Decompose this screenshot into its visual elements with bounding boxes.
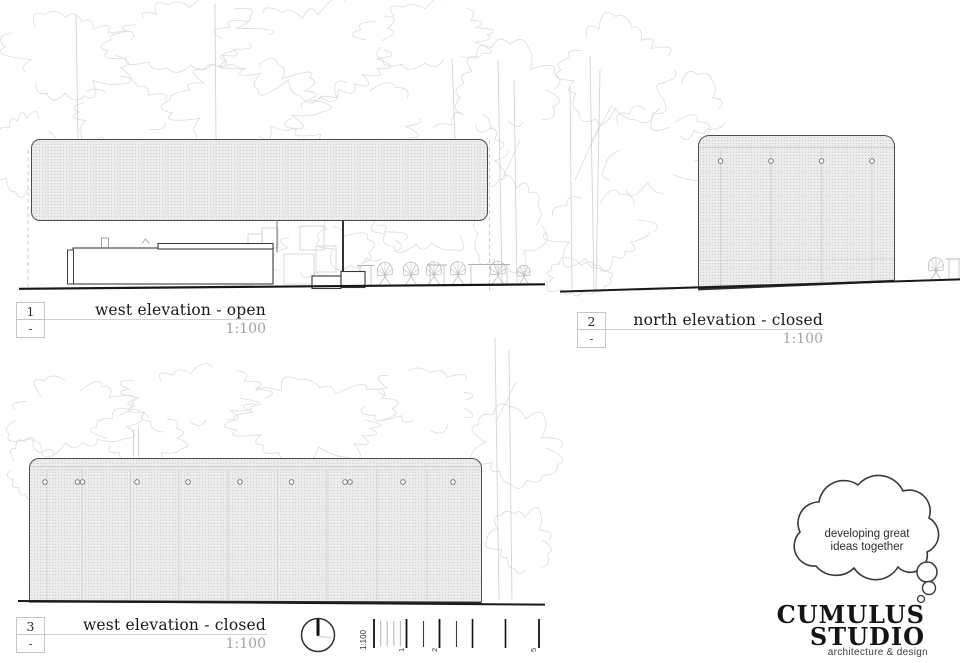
drawing-title: north elevation - closed bbox=[606, 312, 824, 330]
logo-tagline-line1: developing great bbox=[810, 528, 924, 541]
drawing-revision: - bbox=[16, 320, 45, 338]
title-block-1: 1 west elevation - open - 1:100 bbox=[16, 302, 267, 338]
drawing-number: 3 bbox=[16, 617, 45, 635]
logo-subtitle: architecture & design bbox=[828, 647, 928, 658]
drawing-scale: 1:100 bbox=[45, 320, 267, 338]
title-block-2: 2 north elevation - closed - 1:100 bbox=[577, 312, 824, 348]
drawing-sheet: 1 west elevation - open - 1:100 2 north … bbox=[0, 0, 960, 663]
scale-bar-tick-label: 1 bbox=[398, 640, 406, 652]
logo-tagline: developing great ideas together bbox=[810, 528, 924, 554]
drawing-title: west elevation - open bbox=[45, 302, 267, 320]
drawing-scale: 1:100 bbox=[606, 330, 824, 348]
scale-bar-tick-label: 5 bbox=[530, 640, 538, 652]
logo-name-line2: STUDIO bbox=[810, 625, 925, 649]
logo-tagline-line2: ideas together bbox=[810, 541, 924, 554]
title-block-3: 3 west elevation - closed - 1:100 bbox=[16, 617, 267, 653]
drawing-title: west elevation - closed bbox=[45, 617, 267, 635]
drawing-number: 1 bbox=[16, 302, 45, 320]
cumulus-studio-logo: developing great ideas together CUMULUS … bbox=[786, 468, 946, 663]
scale-bar-ratio-label: 1:100 bbox=[360, 620, 368, 650]
drawing-scale: 1:100 bbox=[45, 635, 267, 653]
drawing-revision: - bbox=[577, 330, 606, 348]
scale-bar-tick-label: 2 bbox=[431, 640, 439, 652]
drawing-number: 2 bbox=[577, 312, 606, 330]
drawing-revision: - bbox=[16, 635, 45, 653]
